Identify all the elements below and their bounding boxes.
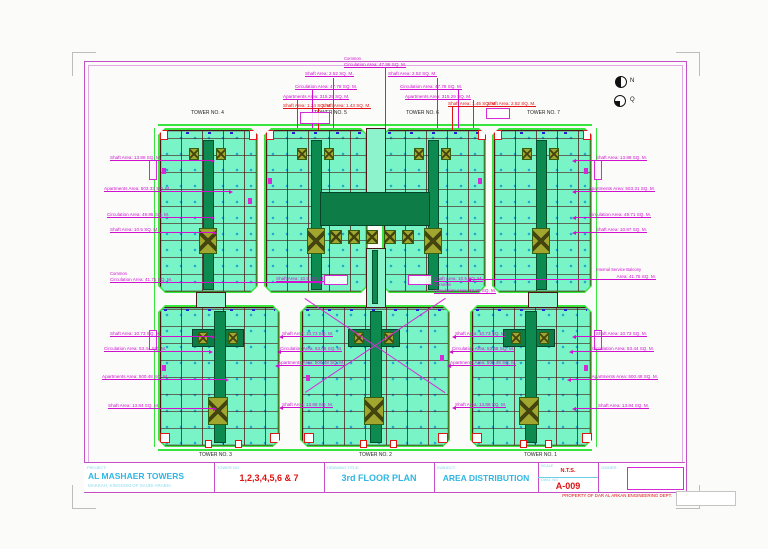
stair-accent	[304, 433, 314, 443]
shaft-box	[384, 230, 396, 244]
elevator-core	[307, 228, 325, 254]
annotation: Circulation Area: 49.85 SQ. M.	[107, 212, 212, 218]
balcony-accent	[248, 198, 252, 204]
dwg-no-value: A-009	[538, 481, 598, 491]
title-block: PROJECT: AL MASHAER TOWERS MAKKAH, KINGD…	[84, 462, 685, 492]
trim-mark	[676, 508, 700, 509]
drawing-title-value: 3rd FLOOR PLAN	[324, 473, 434, 483]
stair-accent	[582, 433, 592, 443]
stair-accent	[472, 433, 482, 443]
tower-block-4	[158, 128, 258, 293]
shaft-box	[366, 230, 378, 244]
dimension-ticks	[164, 132, 253, 134]
shaft-box	[297, 148, 307, 160]
project-label: PROJECT:	[87, 465, 106, 470]
dimension-ticks	[270, 132, 363, 134]
central-circulation-band	[320, 192, 430, 226]
shaft-box	[402, 230, 414, 244]
footprint-line	[158, 449, 592, 451]
leader-line	[452, 106, 453, 130]
annotation: Apartments Area: 500.48 SQ. M.	[278, 360, 344, 366]
balcony-accent	[162, 365, 166, 371]
annotation: Shaft Area: 10.73 SQ. M.	[455, 331, 506, 337]
dim-tag-box	[486, 108, 510, 119]
annotation: Area: 41.75 SQ. M.	[470, 274, 656, 280]
dimension-ticks	[498, 132, 587, 134]
dim-tag-box	[300, 112, 330, 124]
shaft-box	[216, 148, 226, 160]
door-mark	[520, 440, 527, 448]
elevator-core	[519, 397, 539, 425]
balcony-accent	[584, 168, 588, 174]
annotation: Circulation Area: 47.78 SQ. M.	[295, 84, 357, 90]
title-block-divider	[598, 463, 599, 492]
central-connector	[366, 128, 386, 196]
wall-tag	[149, 160, 157, 180]
property-note: PROPERTY OF DAR AL ARKAN ENGINEERING DEP…	[556, 493, 672, 498]
annotation: Shaft Area: 13.88 SQ. M.	[575, 155, 647, 161]
annotation: Apartments Area: 500.48 SQ. M.	[570, 374, 658, 380]
door-mark	[205, 440, 212, 448]
tower-block-2	[300, 305, 450, 447]
project-location: MAKKAH, KINGDOM OF SAUDI ARABIA	[88, 483, 171, 488]
annotation: Circulation Area: 53.44 SQ. M.	[104, 346, 210, 352]
annotation: Apartments Area: 315.29 SQ. M.	[283, 94, 349, 100]
tower-block-7	[492, 128, 592, 293]
annotation: Shaft Area: 13.88 SQ. M.	[282, 402, 333, 408]
annotation: Apartments Area: 315.29 SQ. M.	[405, 94, 471, 100]
annotation: Shaft Area: 13.88 SQ. M.	[110, 155, 212, 161]
annotation: Shaft Area: 1.43 SQ. M.	[322, 103, 371, 109]
scale-value: N.T.S.	[538, 468, 598, 474]
balcony-accent	[306, 375, 310, 381]
elevator-core	[424, 228, 442, 254]
shaft-box	[414, 148, 424, 160]
tower-label-1: TOWER NO. 1	[524, 452, 557, 458]
qibla-label: Q	[630, 97, 635, 103]
shaft-box	[441, 148, 451, 160]
trim-mark	[676, 52, 700, 53]
revision-box	[676, 491, 736, 506]
subject-value: AREA DISTRIBUTION	[434, 473, 538, 483]
tower-label-7: TOWER NO. 7	[527, 110, 560, 116]
balcony-accent	[584, 365, 588, 371]
shaft-box	[330, 230, 342, 244]
annotation: Circulation Area: 53.68 SQ. M.	[280, 346, 342, 352]
trim-mark	[72, 485, 73, 509]
annotation: Shaft Area: 10.5 SQ. M.	[276, 276, 325, 282]
annotation: Shaft Area: 13.88 SQ. M.	[455, 402, 506, 408]
qibla-compass-icon	[614, 95, 626, 107]
door-mark	[235, 440, 242, 448]
trim-mark	[699, 52, 700, 76]
leader-line	[385, 68, 386, 128]
door-mark	[545, 440, 552, 448]
dimension-ticks	[388, 132, 481, 134]
trim-mark	[72, 52, 73, 76]
balcony-accent	[268, 178, 272, 184]
dim-tag-box	[408, 275, 432, 285]
annotation: Shaft Area: 10.73 SQ. M.	[575, 331, 647, 337]
trim-mark	[72, 508, 96, 509]
annotation: Shaft Area: 10.73 SQ. M.	[282, 331, 333, 337]
elevator-core	[364, 397, 384, 425]
dim-tag-box	[324, 275, 348, 285]
footprint-line	[158, 124, 592, 126]
balcony-accent	[440, 355, 444, 361]
annotation: Circulation Area: 49.71 SQ. M.	[575, 212, 651, 218]
annotation: Apartments Area: 500.48 SQ. M.	[450, 360, 516, 366]
shaft-box	[549, 148, 559, 160]
door-mark	[360, 440, 367, 448]
elevator-core	[208, 397, 228, 425]
annotation: Apartments Area: 503.31 SQ. M.	[575, 186, 655, 192]
balcony-accent	[162, 168, 166, 174]
annotation: Circulation Area: 47.86 SQ. M.	[344, 62, 406, 68]
annotation: Shaft Area: 10.87 SQ. M.	[575, 227, 647, 233]
stair-accent	[270, 433, 280, 443]
annotation: Shaft Area: 10.73 SQ. M.	[110, 331, 212, 337]
subject-label: SUBJECT:	[437, 465, 456, 470]
north-label: N	[630, 78, 634, 84]
annotation: Circulation Area: 53.68 SQ. M.	[452, 346, 514, 352]
link-bridge	[528, 292, 558, 308]
annotation: Shaft Area: 13.84 SQ. M.	[108, 403, 214, 409]
elevator-core	[532, 228, 550, 254]
balcony-accent	[478, 178, 482, 184]
owner-box	[627, 467, 684, 490]
shaft-box	[522, 148, 532, 160]
project-name: AL MASHAER TOWERS	[88, 471, 184, 481]
north-compass-icon	[615, 76, 627, 88]
tower-label-3: TOWER NO. 3	[199, 452, 232, 458]
drawing-sheet: N Q	[0, 0, 768, 549]
door-mark	[390, 440, 397, 448]
link-bridge	[196, 292, 226, 308]
annotation: Shaft Area: 2.52 SQ. M.	[305, 71, 354, 77]
annotation: Circulation Area: 47.78 SQ. M.	[400, 84, 462, 90]
shaft-box	[228, 332, 238, 344]
annotation: Shaft Area: 2.52 SQ. M.	[487, 101, 536, 107]
wall-tag	[594, 160, 602, 180]
owner-label: OWNER:	[601, 465, 617, 470]
trim-mark	[72, 52, 96, 53]
annotation: Apartments Area: 503.33 SQ. M.	[104, 186, 230, 192]
tower-spine-corridor	[536, 140, 547, 290]
shaft-box	[348, 230, 360, 244]
annotation: Shaft Area: 10.5 SQ. M.	[110, 227, 214, 233]
annotation: Shaft Area: 2.52 SQ. M.	[388, 71, 437, 77]
shaft-box	[539, 332, 549, 344]
shaft-box	[324, 148, 334, 160]
stair-accent	[438, 433, 448, 443]
annotation: Internal Service Balcony	[596, 268, 641, 273]
tower-label-6: TOWER NO. 6	[406, 110, 439, 116]
drawing-title-label: DRAWING TITLE:	[327, 465, 359, 470]
shaft-box	[511, 332, 521, 344]
tower-label-4: TOWER NO. 4	[191, 110, 224, 116]
central-corridor	[372, 250, 378, 304]
tower-label-2: TOWER NO. 2	[359, 452, 392, 458]
annotation: Apartments Area: 500.48 SQ. M.	[102, 374, 226, 380]
annotation: Circulation Area: 53.44 SQ. M.	[572, 346, 654, 352]
stair-accent	[160, 433, 170, 443]
tower-no-value: 1,2,3,4,5,6 & 7	[214, 473, 324, 483]
tower-no-label: TOWER NO	[217, 465, 239, 470]
annotation: Circulation Area: 33.99 SQ. M.	[434, 288, 496, 294]
annotation: Shaft Area: 13.84 SQ. M.	[575, 403, 649, 409]
